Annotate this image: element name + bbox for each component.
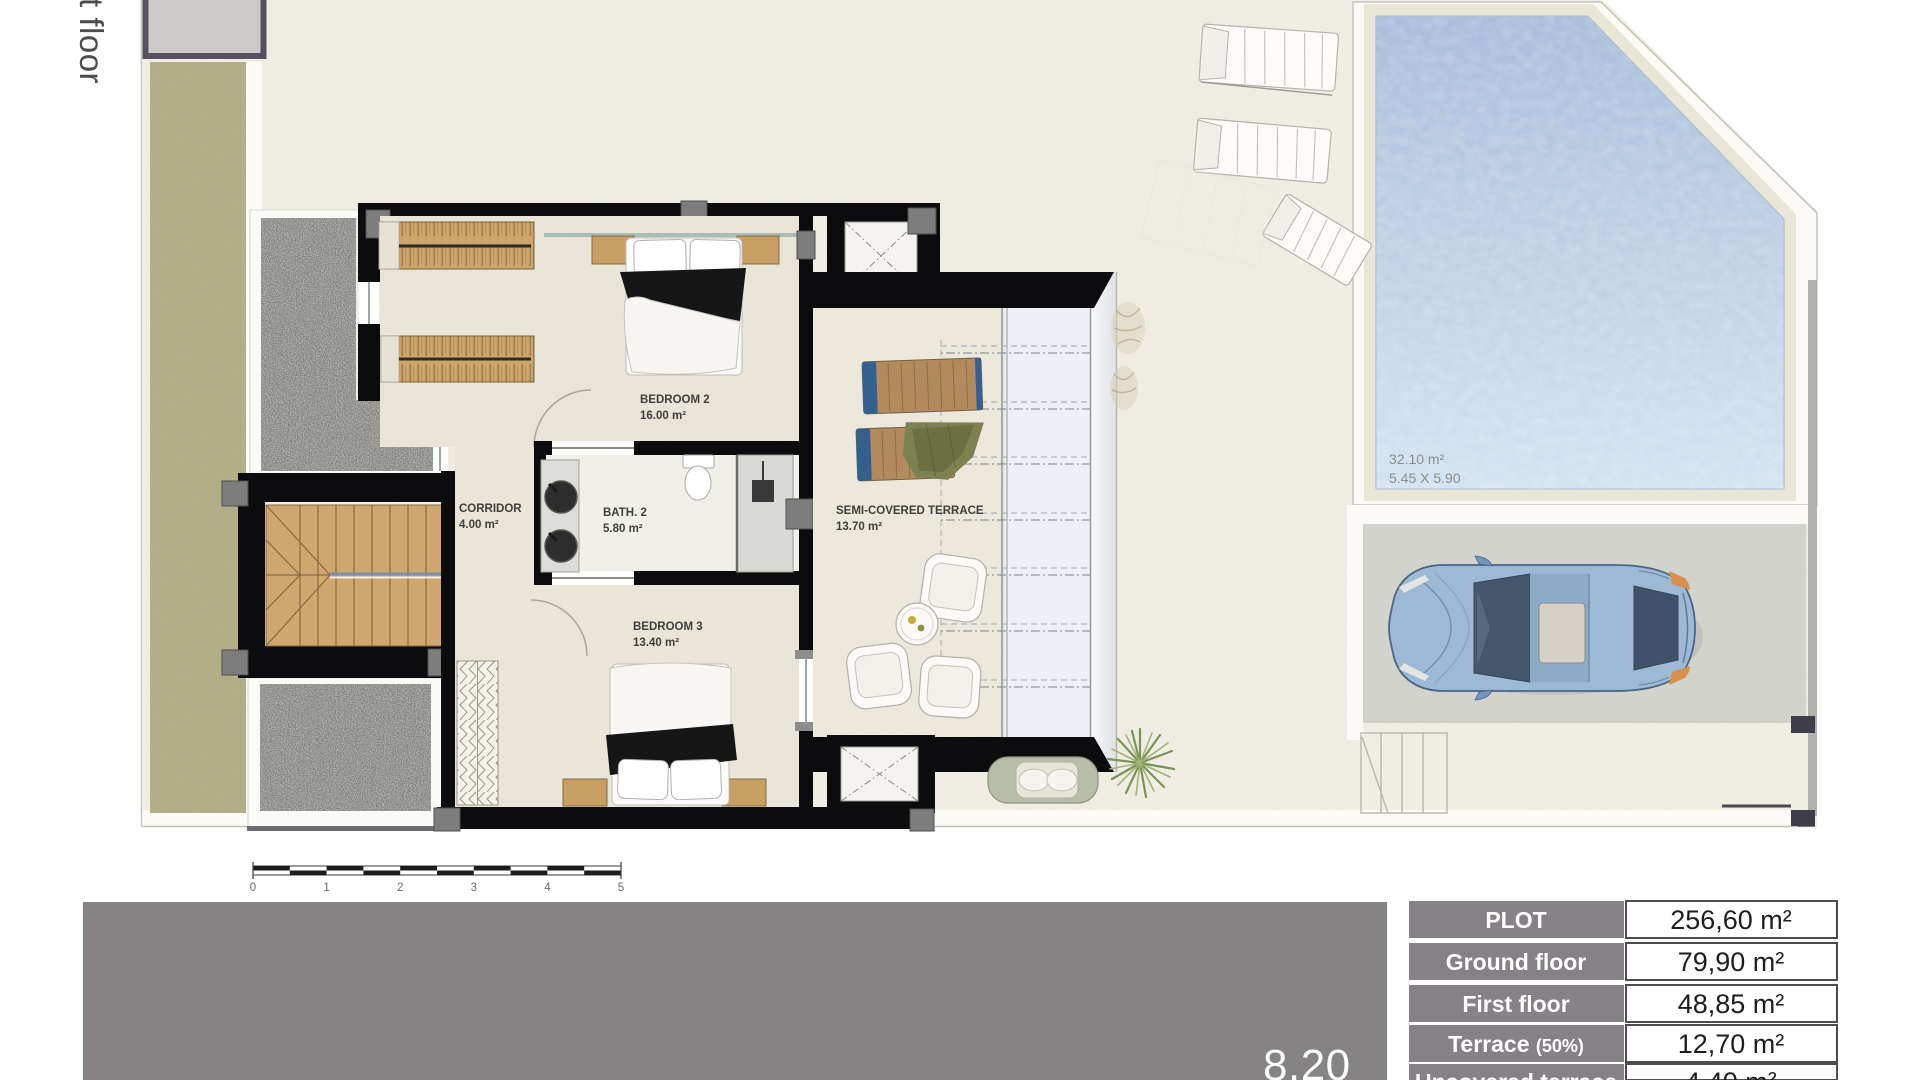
svg-text:32.10 m²: 32.10 m² [1389, 451, 1445, 467]
svg-text:5.80 m²: 5.80 m² [603, 523, 643, 535]
svg-text:8.20: 8.20 [1263, 1041, 1351, 1080]
svg-text:BEDROOM 3: BEDROOM 3 [633, 621, 703, 633]
svg-text:t floor: t floor [73, 0, 110, 84]
svg-text:16.00 m²: 16.00 m² [640, 410, 686, 422]
svg-text:3: 3 [471, 882, 477, 894]
svg-text:79,90 m²: 79,90 m² [1678, 947, 1785, 977]
svg-text:4: 4 [544, 882, 551, 894]
svg-text:13.70 m²: 13.70 m² [836, 521, 882, 533]
svg-text:13.40 m²: 13.40 m² [633, 637, 679, 649]
svg-text:First floor: First floor [1462, 991, 1569, 1017]
svg-text:CORRIDOR: CORRIDOR [459, 503, 522, 515]
svg-text:5.45 X 5.90: 5.45 X 5.90 [1389, 470, 1461, 486]
svg-text:2: 2 [397, 882, 403, 894]
svg-text:1: 1 [323, 882, 329, 894]
svg-text:12,70 m²: 12,70 m² [1678, 1029, 1785, 1059]
svg-text:256,60 m²: 256,60 m² [1670, 905, 1792, 935]
svg-text:48,85 m²: 48,85 m² [1678, 989, 1785, 1019]
svg-text:BEDROOM 2: BEDROOM 2 [640, 394, 710, 406]
svg-text:Uncovered terrace: Uncovered terrace [1415, 1069, 1617, 1080]
svg-text:4,40 m²: 4,40 m² [1685, 1067, 1777, 1080]
svg-text:Ground floor: Ground floor [1446, 949, 1587, 975]
svg-text:0: 0 [250, 882, 256, 894]
svg-text:PLOT: PLOT [1485, 907, 1546, 933]
svg-text:BATH. 2: BATH. 2 [603, 507, 647, 519]
svg-text:SEMI-COVERED TERRACE: SEMI-COVERED TERRACE [836, 505, 984, 517]
svg-text:4.00 m²: 4.00 m² [459, 519, 499, 531]
svg-text:5: 5 [618, 882, 624, 894]
